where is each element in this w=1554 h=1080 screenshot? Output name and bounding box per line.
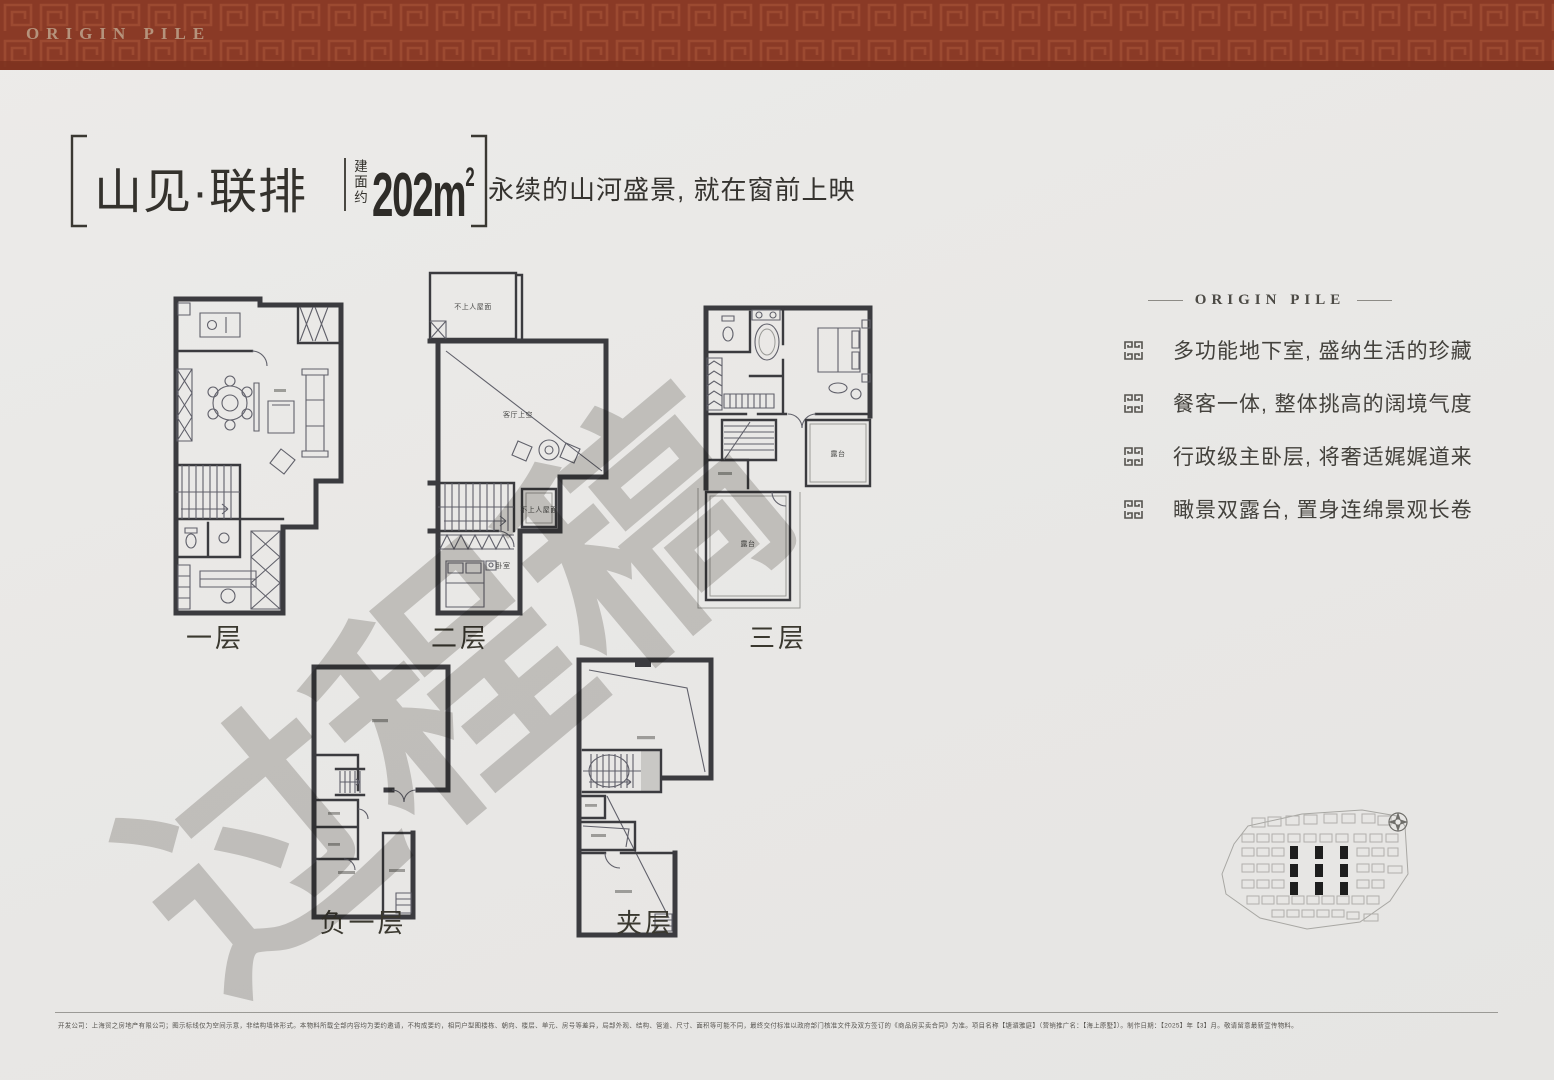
poster-canvas: ORIGIN PILE 山见·联排 建面约 202m2 永续的山河盛景, 就在窗… bbox=[0, 0, 1554, 1080]
floor-plan-level1 bbox=[148, 283, 345, 618]
disclaimer-text: 开发公司：上海贸之房地产有限公司；图示标线仅为空间示意，非结构墙体形式。本物料所… bbox=[58, 1020, 1402, 1030]
site-plan bbox=[1212, 796, 1422, 941]
bracket-right-icon bbox=[470, 134, 488, 228]
heading-line-right bbox=[1357, 300, 1392, 301]
highlight-item: 餐客一体, 整体挑高的阔境气度 bbox=[1122, 391, 1473, 415]
brand-logo: ORIGIN PILE bbox=[26, 24, 211, 44]
greek-key-pattern bbox=[0, 0, 1554, 70]
highlights-heading-text: ORIGIN PILE bbox=[1195, 292, 1345, 309]
svg-text:不上人屋面: 不上人屋面 bbox=[520, 505, 558, 514]
highlight-item: 多功能地下室, 盛纳生活的珍藏 bbox=[1122, 338, 1473, 362]
highlight-text: 多功能地下室, 盛纳生活的珍藏 bbox=[1173, 335, 1473, 365]
svg-text:客厅上空: 客厅上空 bbox=[503, 410, 533, 419]
plan-title: 山见·联排 bbox=[94, 152, 307, 222]
svg-text:卧室: 卧室 bbox=[496, 561, 511, 570]
highlights-list: 多功能地下室, 盛纳生活的珍藏 餐客一体, 整体挑高的阔境气度 行政级主卧层, … bbox=[1122, 338, 1473, 550]
greek-key-bullet-icon bbox=[1122, 498, 1145, 521]
floor-plan-mezzanine bbox=[565, 650, 723, 935]
heading-line-left bbox=[1148, 300, 1183, 301]
floor-plan-basement bbox=[300, 655, 462, 923]
floor-label-level3: 三层 bbox=[718, 618, 838, 655]
svg-text:不上人屋面: 不上人屋面 bbox=[454, 302, 492, 311]
header-band: ORIGIN PILE bbox=[0, 0, 1554, 70]
floor-plan-level3: 露台 露台 bbox=[688, 288, 878, 638]
highlighted-buildings bbox=[1290, 846, 1348, 895]
greek-key-bullet-icon bbox=[1122, 445, 1145, 468]
bracket-left-icon bbox=[70, 134, 88, 228]
floor-plan-level2: 不上人屋面 客厅上空 不上人屋面 卧室 bbox=[418, 265, 612, 615]
area-number: 202m bbox=[372, 161, 465, 230]
greek-key-bullet-icon bbox=[1122, 339, 1145, 362]
svg-text:露台: 露台 bbox=[741, 539, 756, 548]
highlight-text: 瞰景双露台, 置身连绵景观长卷 bbox=[1173, 494, 1473, 524]
highlight-text: 行政级主卧层, 将奢适娓娓道来 bbox=[1173, 441, 1473, 471]
title-divider bbox=[344, 158, 346, 211]
highlight-item: 瞰景双露台, 置身连绵景观长卷 bbox=[1122, 497, 1473, 521]
highlights-heading: ORIGIN PILE bbox=[1148, 292, 1392, 309]
greek-key-bullet-icon bbox=[1122, 392, 1145, 415]
floor-label-level2: 二层 bbox=[400, 618, 520, 655]
area-prefix: 建面约 bbox=[352, 159, 366, 217]
floor-label-level1: 一层 bbox=[155, 618, 275, 655]
highlight-item: 行政级主卧层, 将奢适娓娓道来 bbox=[1122, 444, 1473, 468]
floor-label-mezzanine: 夹层 bbox=[585, 903, 705, 940]
footer-divider bbox=[55, 1012, 1498, 1013]
highlight-text: 餐客一体, 整体挑高的阔境气度 bbox=[1173, 388, 1473, 418]
subtitle: 永续的山河盛景, 就在窗前上映 bbox=[488, 170, 855, 207]
floor-label-basement: 负一层 bbox=[303, 903, 423, 940]
svg-text:露台: 露台 bbox=[831, 449, 846, 458]
